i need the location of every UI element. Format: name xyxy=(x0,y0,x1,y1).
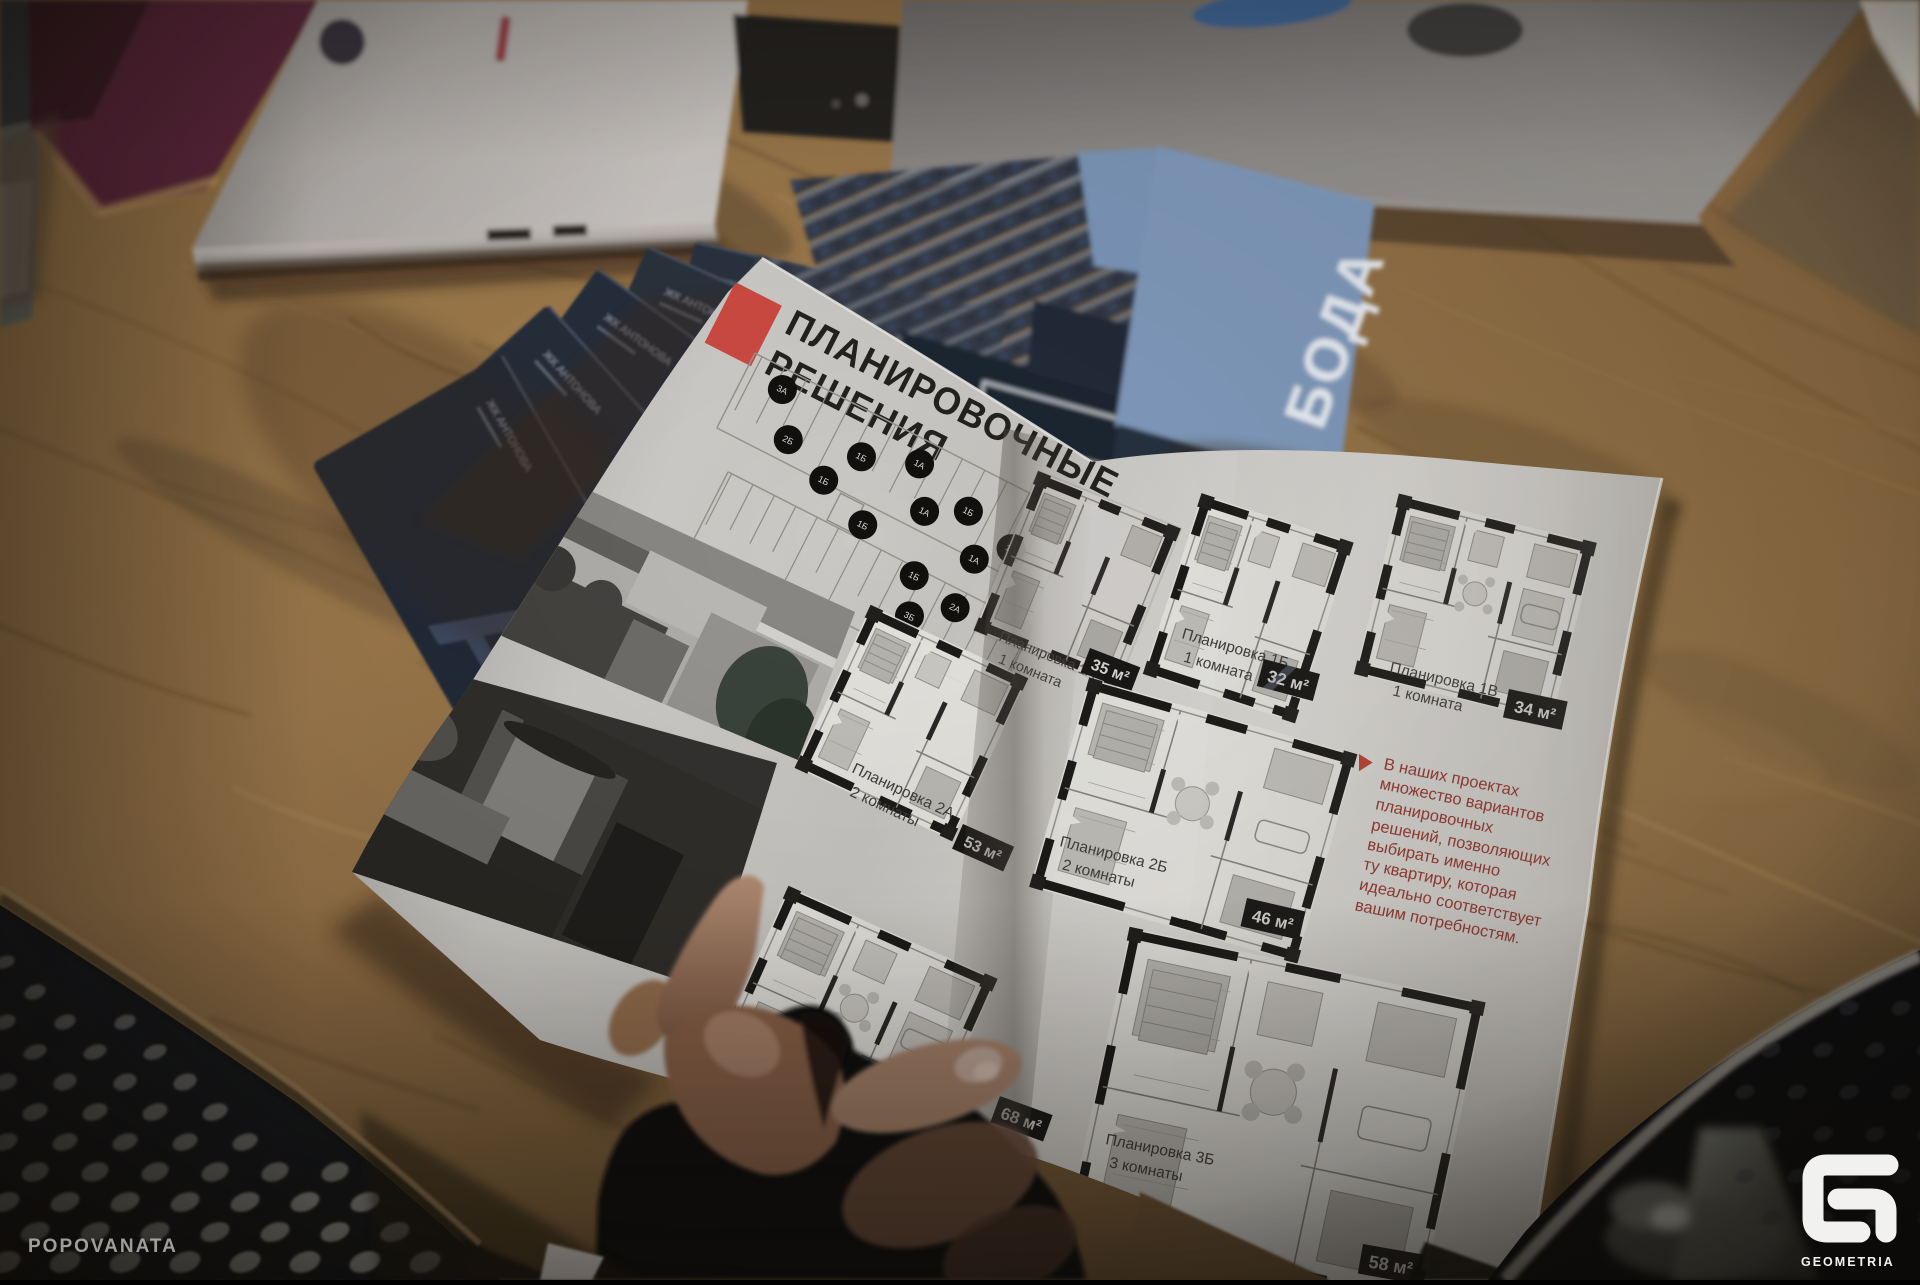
svg-text:GEOMETRIA: GEOMETRIA xyxy=(1801,1255,1895,1269)
svg-text:POPOVANATA: POPOVANATA xyxy=(28,1236,178,1257)
